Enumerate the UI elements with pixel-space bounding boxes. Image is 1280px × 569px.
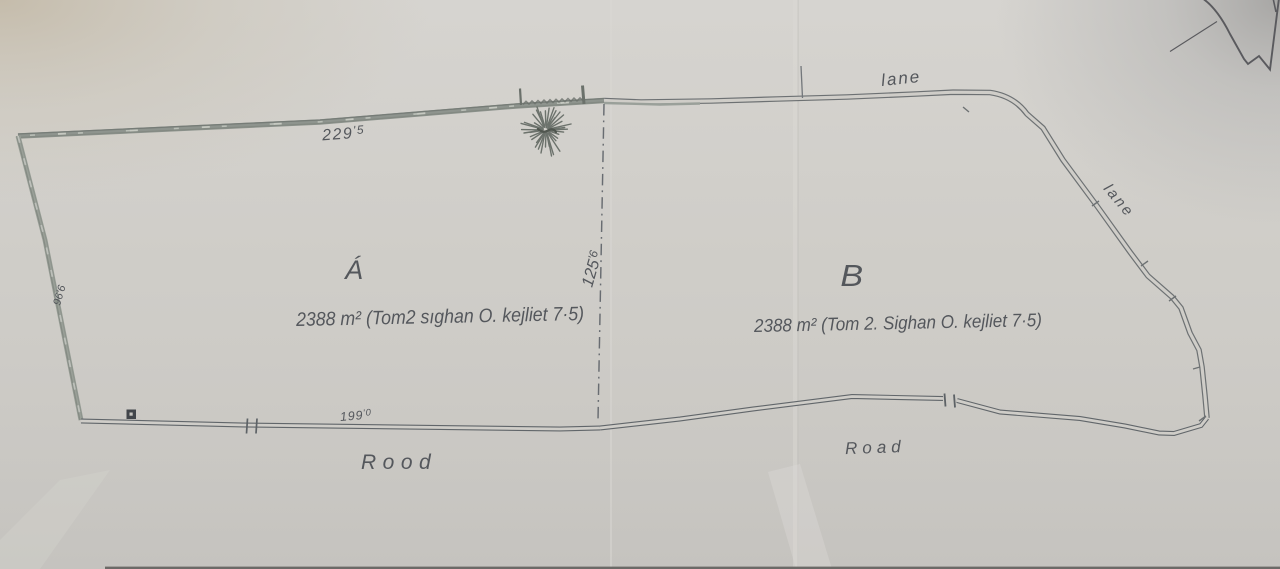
svg-text:B: B <box>840 258 863 292</box>
svg-text:Á: Á <box>343 255 363 285</box>
svg-text:Rood: Rood <box>361 451 437 474</box>
svg-text:Road: Road <box>845 437 906 458</box>
